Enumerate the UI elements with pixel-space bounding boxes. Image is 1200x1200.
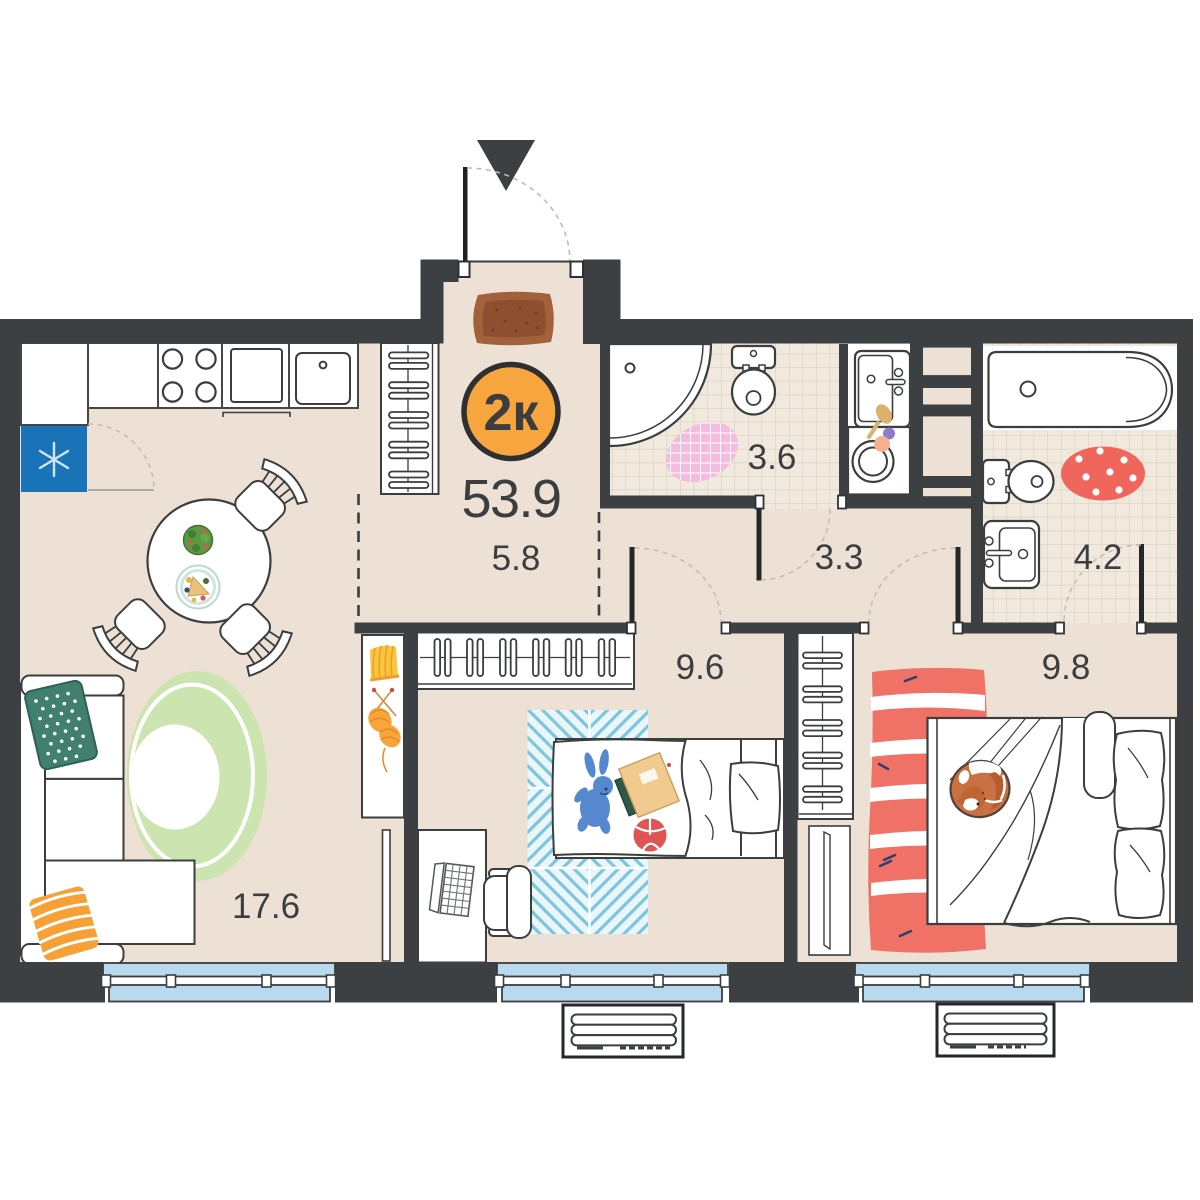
svg-text:9.8: 9.8 bbox=[1042, 648, 1091, 687]
svg-text:5.8: 5.8 bbox=[492, 539, 541, 578]
svg-text:3.3: 3.3 bbox=[815, 538, 864, 577]
svg-text:9.6: 9.6 bbox=[676, 648, 725, 687]
svg-text:4.2: 4.2 bbox=[1074, 538, 1123, 577]
svg-text:3.6: 3.6 bbox=[748, 438, 797, 477]
svg-text:17.6: 17.6 bbox=[232, 887, 300, 926]
svg-text:2к: 2к bbox=[484, 384, 540, 442]
svg-text:53.9: 53.9 bbox=[461, 469, 560, 529]
